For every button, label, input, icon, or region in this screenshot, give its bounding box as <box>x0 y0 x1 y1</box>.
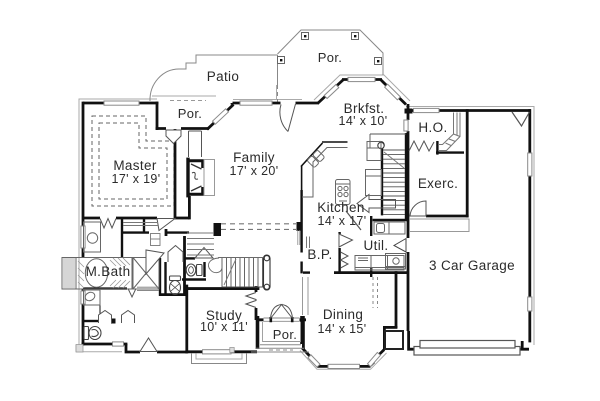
svg-text:B.P.: B.P. <box>307 247 332 262</box>
svg-text:M.Bath: M.Bath <box>86 264 131 279</box>
svg-text:17' x 19': 17' x 19' <box>112 172 161 186</box>
svg-text:Patio: Patio <box>207 69 240 84</box>
svg-text:17' x 20': 17' x 20' <box>230 164 279 178</box>
svg-text:14' x 15': 14' x 15' <box>318 322 367 336</box>
svg-text:14' x 10': 14' x 10' <box>339 114 388 128</box>
svg-text:Kitchen: Kitchen <box>317 200 364 215</box>
svg-text:Util.: Util. <box>364 238 389 253</box>
svg-text:H.O.: H.O. <box>418 120 447 135</box>
svg-text:3 Car Garage: 3 Car Garage <box>429 258 515 273</box>
svg-text:Master: Master <box>113 158 157 173</box>
svg-text:Por.: Por. <box>318 50 343 65</box>
svg-text:10' x 11': 10' x 11' <box>200 320 248 334</box>
svg-text:Por.: Por. <box>178 106 203 121</box>
svg-text:Por.: Por. <box>273 327 298 342</box>
svg-text:Dining: Dining <box>323 307 363 322</box>
svg-text:Family: Family <box>233 150 275 165</box>
svg-text:14' x 17': 14' x 17' <box>318 214 367 228</box>
svg-text:Exerc.: Exerc. <box>418 176 458 191</box>
